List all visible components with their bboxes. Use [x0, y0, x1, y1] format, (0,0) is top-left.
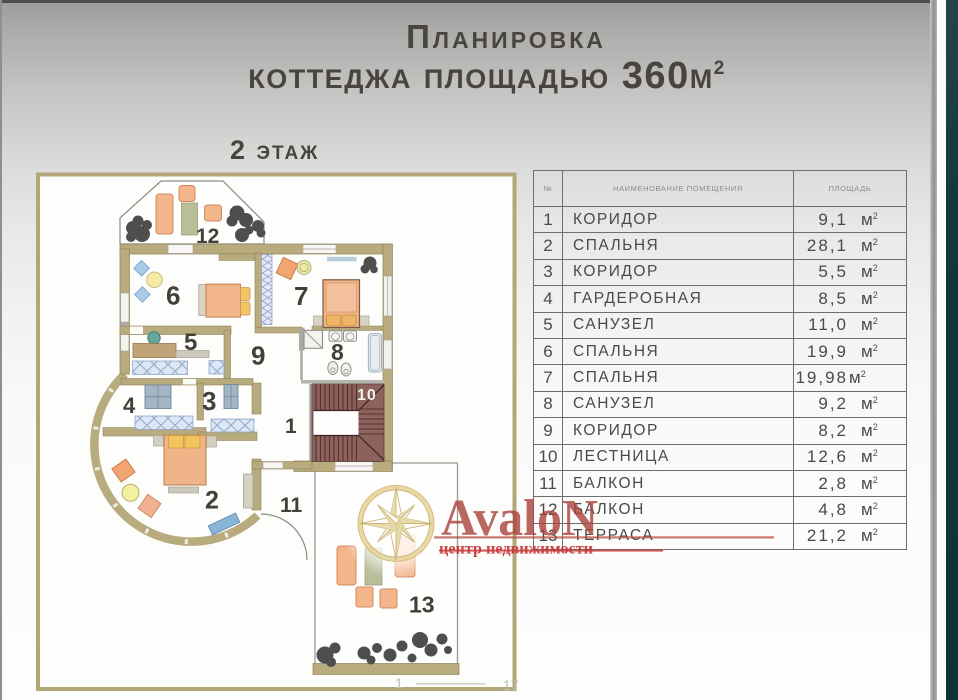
svg-text:7: 7 — [294, 281, 308, 311]
svg-text:AvaloN: AvaloN — [441, 490, 598, 547]
svg-text:1: 1 — [395, 675, 403, 691]
svg-text:2: 2 — [205, 487, 219, 515]
svg-text:8: 8 — [331, 339, 344, 365]
svg-text:3: 3 — [202, 386, 216, 416]
svg-text:1: 1 — [285, 415, 297, 438]
svg-text:10: 10 — [357, 387, 377, 404]
svg-text:12: 12 — [196, 225, 219, 248]
svg-text:17: 17 — [503, 677, 518, 693]
svg-text:9: 9 — [251, 341, 265, 371]
svg-text:центр недвижимости: центр недвижимости — [439, 541, 593, 558]
svg-text:4: 4 — [123, 393, 136, 418]
svg-text:11: 11 — [280, 494, 303, 517]
svg-text:13: 13 — [409, 592, 435, 618]
svg-text:6: 6 — [166, 281, 180, 311]
svg-text:5: 5 — [184, 329, 197, 356]
